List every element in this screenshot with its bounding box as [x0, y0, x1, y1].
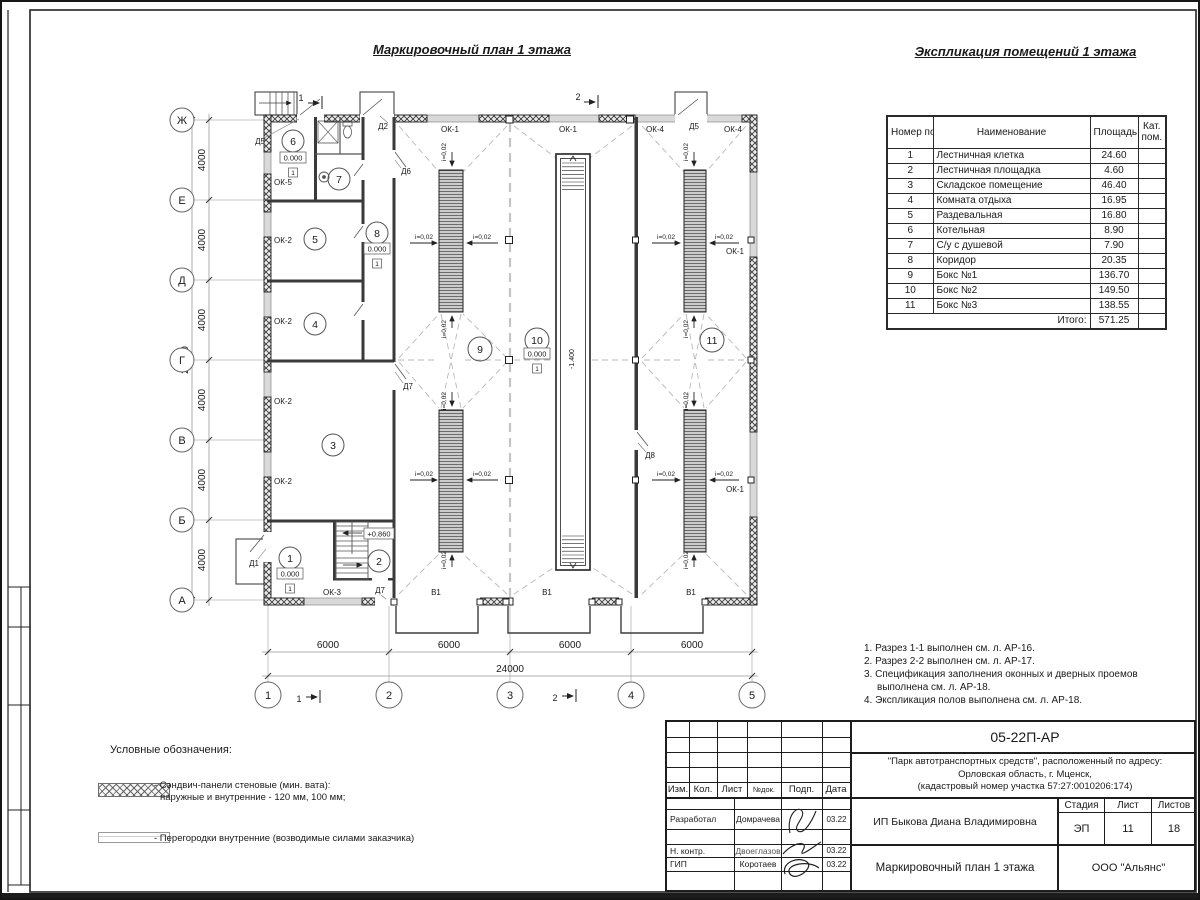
svg-text:i=0,02: i=0,02	[415, 234, 433, 241]
svg-text:i=0,02: i=0,02	[441, 143, 448, 161]
room-num: 8	[887, 253, 933, 268]
table-row: 1Лестничная клетка24.60	[887, 148, 1166, 163]
room-number: 5	[312, 234, 318, 246]
svg-text:1: 1	[298, 93, 303, 103]
svg-text:1: 1	[296, 694, 301, 704]
room-num: 6	[887, 223, 933, 238]
room-number: 9	[477, 344, 483, 356]
room-cat	[1138, 238, 1166, 253]
svg-text:i=0,02: i=0,02	[441, 392, 448, 410]
door-label: Д5	[255, 137, 265, 146]
table-row: 11Бокс №3138.55	[887, 298, 1166, 313]
plan-title: Маркировочный план 1 этажа	[332, 42, 612, 57]
svg-text:6000: 6000	[438, 640, 461, 651]
notes-block: 1. Разрез 1-1 выполнен см. л. АР-16. 2. …	[864, 642, 1164, 707]
room-number: 11	[707, 335, 718, 347]
room-cat	[1138, 253, 1166, 268]
svg-text:6000: 6000	[317, 640, 340, 651]
room-cat	[1138, 298, 1166, 313]
col-header-name: Наименование	[933, 116, 1090, 148]
tb-date-gip: 03.22	[823, 857, 850, 871]
axis-label: В	[178, 435, 185, 447]
svg-text:0.000: 0.000	[284, 154, 303, 163]
axis-label: Г	[179, 355, 185, 367]
scan-edge-strip	[2, 893, 1200, 900]
tb-project-line1: "Парк автотранспортных средств", располо…	[857, 756, 1193, 769]
window-label: ОК-3	[323, 588, 342, 597]
tb-col-podp: Подп.	[781, 782, 822, 797]
room-area: 46.40	[1090, 178, 1138, 193]
door-label: Д7	[403, 382, 413, 391]
svg-text:i=0,02: i=0,02	[473, 471, 491, 478]
tb-name-gip: Коротаев	[735, 857, 781, 871]
room-num: 11	[887, 298, 933, 313]
door-label: Д1	[249, 559, 259, 568]
window-label: ОК-2	[274, 236, 293, 245]
svg-text:4000: 4000	[197, 548, 208, 571]
svg-text:i=0,02: i=0,02	[715, 234, 733, 241]
svg-text:i=0,02: i=0,02	[441, 320, 448, 338]
room-area: 16.95	[1090, 193, 1138, 208]
svg-text:+0.860: +0.860	[367, 530, 390, 539]
svg-text:24000: 24000	[496, 664, 524, 675]
axis-label: 5	[749, 690, 755, 702]
table-row: 7С/у с душевой7.90	[887, 238, 1166, 253]
exterior-walls	[250, 99, 757, 606]
axis-label: 2	[386, 690, 392, 702]
axis-label: А	[178, 595, 186, 607]
tb-project-line2: Орловская область, г. Мценск,	[857, 769, 1193, 782]
room-name: Лестничная клетка	[933, 148, 1090, 163]
window-label: ОК-1	[441, 125, 460, 134]
tb-role-gip: ГИП	[668, 857, 736, 871]
svg-text:4000: 4000	[197, 468, 208, 491]
tb-date-ncontrol: 03.22	[823, 844, 850, 857]
table-row: 9Бокс №1136.70	[887, 268, 1166, 283]
room-num: 3	[887, 178, 933, 193]
door-label: Д8	[645, 451, 655, 460]
tb-client: ИП Быкова Диана Владимировна	[853, 799, 1057, 844]
legend-item-2: - Перегородки внутренние (возводимые сил…	[154, 833, 414, 845]
tb-name-ncontrol: Двоеглазов	[735, 844, 781, 857]
axis-label: Е	[178, 195, 185, 207]
svg-text:i=0,02: i=0,02	[473, 234, 491, 241]
table-row: 2Лестничная площадка4.60	[887, 163, 1166, 178]
note-item: 2. Разрез 2-2 выполнен см. л. АР-17.	[864, 655, 1164, 668]
tb-project-line3: (кадастровый номер участка 57:27:0010206…	[857, 781, 1193, 794]
tb-col-ndok: №док.	[747, 782, 781, 797]
tb-col-izm: Изм.	[667, 782, 689, 797]
svg-text:2: 2	[552, 693, 557, 703]
svg-text:i=0,02: i=0,02	[683, 392, 690, 410]
table-row: 3Складское помещение46.40	[887, 178, 1166, 193]
gate-label: В1	[431, 588, 441, 597]
sanitary-fixtures	[315, 117, 362, 182]
room-schedule-table: Номер помещ. Наименование Площадь Кат. п…	[886, 115, 1167, 330]
room-name: С/у с душевой	[933, 238, 1090, 253]
svg-text:1: 1	[291, 170, 295, 177]
room-name: Коридор	[933, 253, 1090, 268]
window-label: ОК-4	[646, 125, 665, 134]
total-label: Итого:	[887, 313, 1090, 329]
table-row: 6Котельная8.90	[887, 223, 1166, 238]
room-cat	[1138, 283, 1166, 298]
tb-project-description: "Парк автотранспортных средств", располо…	[857, 756, 1193, 794]
window-label: ОК-1	[726, 485, 745, 494]
room-number: 8	[374, 228, 380, 240]
room-area: 20.35	[1090, 253, 1138, 268]
note-item: 1. Разрез 1-1 выполнен см. л. АР-16.	[864, 642, 1164, 655]
window-label: ОК-4	[724, 125, 743, 134]
svg-text:4000: 4000	[197, 308, 208, 331]
svg-text:i=0,02: i=0,02	[683, 320, 690, 338]
room-name: Раздевальная	[933, 208, 1090, 223]
room-number: 3	[330, 440, 336, 452]
axis-label: 3	[507, 690, 513, 702]
title-block: Изм. Кол. Лист №док. Подп. Дата Разработ…	[665, 720, 1196, 892]
table-row: 4Комната отдыха16.95	[887, 193, 1166, 208]
window-label: ОК-2	[274, 477, 293, 486]
room-num: 10	[887, 283, 933, 298]
tb-sheet-label: Лист	[1105, 798, 1151, 812]
room-name: Комната отдыха	[933, 193, 1090, 208]
room-cat	[1138, 268, 1166, 283]
axis-label: Ж	[177, 115, 187, 127]
room-number: 1	[287, 553, 293, 565]
room-area: 24.60	[1090, 148, 1138, 163]
room-numbers: 1 2 3 4 5 6 7 8 9 10 11	[279, 130, 724, 572]
drawing-sheet: i=0,02i=0,02 i=0,02i=0,02 i=0,02i=0,02 i…	[0, 0, 1200, 900]
signature-gip	[779, 838, 825, 888]
svg-text:-1.400: -1.400	[569, 349, 576, 369]
legend-item-1-line-2: наружные и внутренние - 120 мм, 100 мм;	[160, 792, 345, 804]
tb-sheet-value: 11	[1105, 813, 1151, 844]
tb-col-data: Дата	[822, 782, 850, 797]
tb-document-code: 05-22П-АР	[852, 722, 1198, 752]
svg-text:i=0,02: i=0,02	[441, 551, 448, 569]
tb-name-developer: Домрачева	[735, 809, 781, 829]
door-label: Д5	[689, 122, 699, 131]
axis-label: 1	[265, 690, 271, 702]
room-num: 9	[887, 268, 933, 283]
col-header-area: Площадь	[1090, 116, 1138, 148]
room-area: 4.60	[1090, 163, 1138, 178]
room-number: 2	[376, 556, 382, 568]
svg-text:i=0,02: i=0,02	[415, 471, 433, 478]
room-number: 4	[312, 319, 318, 331]
room-name: Лестничная площадка	[933, 163, 1090, 178]
door-label: Д7	[375, 586, 385, 595]
room-area: 136.70	[1090, 268, 1138, 283]
window-label: ОК-2	[274, 317, 293, 326]
door-label: Д6	[401, 167, 411, 176]
svg-text:1: 1	[375, 261, 379, 268]
table-row: 5Раздевальная16.80	[887, 208, 1166, 223]
tb-stage-value: ЭП	[1059, 813, 1104, 844]
window-label: ОК-1	[559, 125, 578, 134]
svg-text:1: 1	[535, 366, 539, 373]
signature-developer	[782, 801, 822, 843]
axis-label: 4	[628, 690, 634, 702]
svg-text:i=0,02: i=0,02	[657, 471, 675, 478]
room-area: 149.50	[1090, 283, 1138, 298]
room-name: Бокс №3	[933, 298, 1090, 313]
window-label: ОК-1	[726, 247, 745, 256]
gate-label: В1	[686, 588, 696, 597]
tb-col-list: Лист	[717, 782, 747, 797]
axis-bubbles: Ж Е Д Г В Б А 1 2 3 4 5	[170, 108, 765, 708]
room-area: 8.90	[1090, 223, 1138, 238]
note-item: 4. Экспликация полов выполнена см. л. АР…	[864, 694, 1164, 707]
svg-text:6000: 6000	[559, 640, 582, 651]
svg-text:i=0,02: i=0,02	[683, 143, 690, 161]
legend-title: Условные обозначения:	[110, 744, 232, 756]
legend-item-1-line-1: - Сэндвич-панели стеновые (мин. вата):	[154, 780, 330, 792]
window-label: ОК-2	[274, 397, 293, 406]
room-cat	[1138, 208, 1166, 223]
total-value: 571.25	[1090, 313, 1138, 329]
tb-sheets-value: 18	[1152, 813, 1196, 844]
axis-label: Б	[178, 515, 185, 527]
tb-date-developer: 03.22	[823, 809, 850, 829]
window-label: ОК-5	[274, 178, 293, 187]
door-label: Д2	[378, 122, 388, 131]
tb-role-developer: Разработал	[668, 809, 736, 829]
tb-drawing-title: Маркировочный план 1 этажа	[853, 846, 1057, 890]
room-num: 5	[887, 208, 933, 223]
tb-organization: ООО "Альянс"	[1059, 846, 1198, 890]
room-cat	[1138, 148, 1166, 163]
svg-text:0.000: 0.000	[368, 245, 387, 254]
room-number: 6	[290, 136, 296, 148]
svg-text:i=0,02: i=0,02	[715, 471, 733, 478]
svg-text:2: 2	[575, 92, 580, 102]
note-item: 3. Спецификация заполнения оконных и две…	[864, 668, 1164, 694]
room-num: 7	[887, 238, 933, 253]
room-name: Бокс №2	[933, 283, 1090, 298]
room-name: Складское помещение	[933, 178, 1090, 193]
tb-sheets-label: Листов	[1152, 798, 1196, 812]
svg-text:0.000: 0.000	[281, 570, 300, 579]
col-header-cat: Кат. пом.	[1138, 116, 1166, 148]
room-number: 10	[531, 335, 543, 347]
room-cat	[1138, 223, 1166, 238]
svg-text:4000: 4000	[197, 148, 208, 171]
gate-label: В1	[542, 588, 552, 597]
room-number: 7	[336, 174, 342, 186]
svg-text:i=0,02: i=0,02	[657, 234, 675, 241]
stair-room2	[336, 522, 368, 579]
room-name: Котельная	[933, 223, 1090, 238]
svg-text:4000: 4000	[197, 228, 208, 251]
svg-text:6000: 6000	[681, 640, 704, 651]
tb-role-ncontrol: Н. контр.	[668, 844, 736, 857]
svg-text:4000: 4000	[197, 388, 208, 411]
room-area: 138.55	[1090, 298, 1138, 313]
room-cat	[1138, 178, 1166, 193]
tb-col-kol: Кол.	[689, 782, 717, 797]
room-num: 1	[887, 148, 933, 163]
room-area: 7.90	[1090, 238, 1138, 253]
level-marks: 0.000 0.000 0.000 0.000 +0.860 1 1 1 1 -…	[277, 152, 576, 593]
svg-text:i=0,02: i=0,02	[683, 551, 690, 569]
room-area: 16.80	[1090, 208, 1138, 223]
tb-stage-label: Стадия	[1059, 798, 1104, 812]
svg-text:1: 1	[288, 586, 292, 593]
schedule-title: Экспликация помещений 1 этажа	[886, 44, 1165, 59]
table-row: 8Коридор20.35	[887, 253, 1166, 268]
total-cat	[1138, 313, 1166, 329]
col-header-num: Номер помещ.	[887, 116, 933, 148]
table-total-row: Итого: 571.25	[887, 313, 1166, 329]
room-cat	[1138, 163, 1166, 178]
axis-label: Д	[178, 275, 186, 287]
room-num: 2	[887, 163, 933, 178]
room-name: Бокс №1	[933, 268, 1090, 283]
table-row: 10Бокс №2149.50	[887, 283, 1166, 298]
room-num: 4	[887, 193, 933, 208]
room-cat	[1138, 193, 1166, 208]
svg-text:0.000: 0.000	[528, 350, 547, 359]
gate-leaves	[396, 606, 703, 633]
